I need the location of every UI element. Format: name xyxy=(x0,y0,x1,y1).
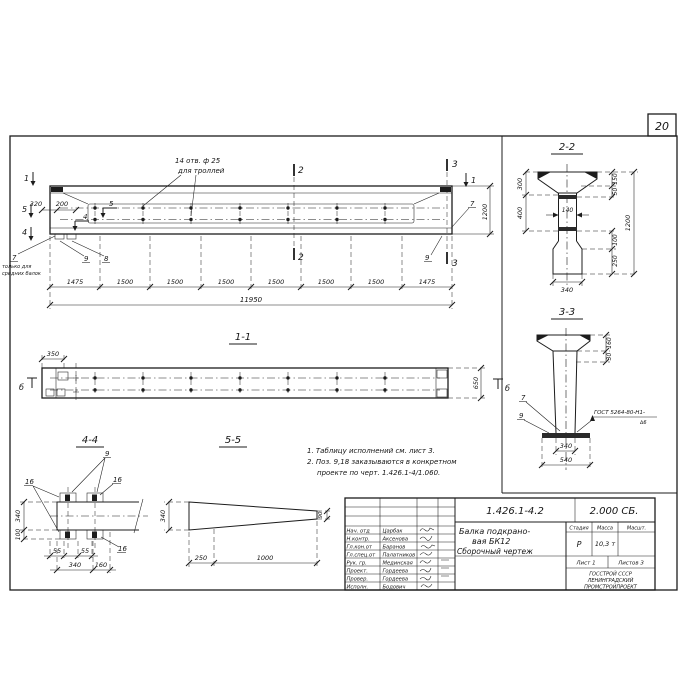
doc-number: 1.426.1-4.2 xyxy=(486,506,544,517)
view-5-5: 5-5 340 90 250 1000 xyxy=(159,435,331,567)
elevation-view: 2 2 3 3 1 5 4 5 4 xyxy=(2,157,494,309)
dim-100-left: 100 xyxy=(15,529,22,541)
org-line2: ЛЕНИНГРАДСКИЙ xyxy=(587,577,634,584)
beam-end-tab-left xyxy=(51,187,63,192)
pos-7-note-line1: только для xyxy=(2,264,31,270)
drawing-canvas: 20 2 2 xyxy=(0,0,700,700)
signature-rows: Нач. отд Царбак Н.контр. Аксенова Гл.кон… xyxy=(347,528,416,590)
end-detail-d xyxy=(437,370,447,378)
bolt-axes xyxy=(68,487,95,549)
col-stage: Стадия xyxy=(569,526,588,532)
top-flange xyxy=(538,172,597,193)
view-arrow-right: 1 xyxy=(464,173,477,187)
end-plate-b xyxy=(67,234,76,239)
weld-band-bottom xyxy=(558,227,577,231)
note-line-3: проекте по черт. 1.426.1-4/1.060. xyxy=(317,469,440,477)
dims-bottom: 55 55 340 160 xyxy=(44,532,116,573)
dim-50: 50 xyxy=(612,188,619,196)
plan-outline xyxy=(42,368,448,398)
pos-8-left: 8 xyxy=(104,255,109,263)
dim-400: 400 xyxy=(516,207,524,219)
pos-16-top-left: 16 xyxy=(25,478,34,486)
chain-dim-7: 1500 xyxy=(368,278,385,286)
weld-note-sub: ∆6 xyxy=(639,420,647,426)
chain-dim-6: 1500 xyxy=(318,278,335,286)
weld-band-top xyxy=(558,195,577,199)
pos-9-left: 9 xyxy=(84,255,89,263)
signature-marks xyxy=(420,528,449,587)
section-mark-4-inner: 4 xyxy=(83,213,87,221)
row-role: Нач. отд xyxy=(347,528,371,534)
chain-dim-5: 1500 xyxy=(268,278,285,286)
row-role: Н.контр. xyxy=(347,536,370,542)
row-name: Гордеева xyxy=(383,568,409,574)
row-role: Рук. гр. xyxy=(347,560,367,566)
chain-dim-2: 1500 xyxy=(117,278,134,286)
view-mark-4-left: 4 xyxy=(22,228,27,237)
beam-web-panel xyxy=(88,204,414,223)
chain-dim-4: 1500 xyxy=(218,278,235,286)
sheets-label: Листов 3 xyxy=(617,561,644,567)
end-detail-a xyxy=(58,372,68,380)
dim-bottom-width: 340 xyxy=(550,274,585,294)
pos-9: 9 xyxy=(519,412,524,420)
stamp-title-line3: Сборочный чертеж xyxy=(457,547,533,556)
row-role: Гл.кон.от xyxy=(347,544,373,550)
dimension-chain: 1475 1500 1500 1500 1500 1500 1500 1475 … xyxy=(47,236,455,309)
leaders-left: 7 только для средних балок 9 8 xyxy=(2,236,110,277)
section-mark-3-bottom: 3 xyxy=(452,259,458,269)
row-role: Гл.спец.от xyxy=(347,552,377,558)
weld-note: ГОСТ 5264-80-Н1- xyxy=(594,410,645,416)
view-mark-1-left: 1 xyxy=(24,174,29,183)
dim-55-b: 55 xyxy=(81,547,89,555)
view-mark-b-right: б xyxy=(505,384,510,393)
end-plate-a xyxy=(55,234,64,239)
section-mark-3-top: 3 xyxy=(452,160,458,170)
view-1-1: 1-1 350 650 б xyxy=(19,332,510,403)
dims-right: 150 50 100 250 1200 xyxy=(577,169,638,277)
pos-7: 7 xyxy=(521,394,526,402)
row-role: Исполн. xyxy=(347,584,369,590)
section-3-3: 3-3 160 30 7 9 ГОСТ 5264-80-Н1- xyxy=(517,307,657,470)
stamp-title-line1: Балка подкрано- xyxy=(459,527,530,536)
org-line3: ПРОМСТРОЙПРОЕКТ xyxy=(584,584,638,591)
note-line-1: 1. Таблицу исполнений см. лист 3. xyxy=(307,447,435,455)
plate-leaders: 7 9 xyxy=(517,394,560,433)
row-name: Баранов xyxy=(383,544,406,550)
dim-340-bottom: 340 xyxy=(69,561,81,569)
chain-dim-8: 1475 xyxy=(419,278,436,286)
drawing-sheet: 20 2 2 xyxy=(0,0,700,700)
row-name: Аксенова xyxy=(382,536,409,542)
dim-160: 160 xyxy=(606,337,613,349)
flange-chamfer-left xyxy=(537,335,549,341)
bottom-plate xyxy=(542,433,590,438)
row-name: Мединская xyxy=(383,560,413,566)
section-2-2-title: 2-2 xyxy=(559,142,575,153)
row-name: Царбак xyxy=(383,528,404,534)
weld-callout: ГОСТ 5264-80-Н1- ∆6 xyxy=(577,410,657,432)
pos-7-note-line2: средних балок xyxy=(2,271,41,277)
dim-320: 320 xyxy=(30,200,42,208)
dim-540: 540 xyxy=(560,456,572,464)
dim-340-left: 340 xyxy=(14,510,22,522)
dim-150: 150 xyxy=(612,173,619,185)
mass-value: 10,3 т xyxy=(595,540,616,548)
dim-160-bottom: 160 xyxy=(95,561,107,569)
section-2-2: 2-2 300 400 150 50 100 250 xyxy=(516,142,638,294)
row-role: Провер. xyxy=(347,576,369,582)
org-line1: ГОССТРОЙ СССР xyxy=(589,571,632,578)
dim-340-label: 340 xyxy=(159,510,167,522)
dims-bottom: 250 1000 xyxy=(186,521,320,567)
dim-340-22: 340 xyxy=(561,286,573,294)
holes-note-line2: для троллей xyxy=(177,167,225,175)
dim-200: 200 xyxy=(56,200,68,208)
doc-code: 2.000 СБ. xyxy=(590,506,639,517)
view-1-1-title: 1-1 xyxy=(235,332,251,343)
sheet-label: Лист 1 xyxy=(575,561,595,567)
pos-9: 9 xyxy=(105,450,110,458)
col-scale: Масшт. xyxy=(627,526,646,532)
beam-haunch-right xyxy=(414,193,439,204)
dim-140: 140 xyxy=(562,207,574,214)
web-right xyxy=(575,351,577,433)
section-mark-2-top: 2 xyxy=(298,166,304,176)
top-flange xyxy=(537,335,590,351)
note-line-2: 2. Поз. 9,18 заказываются в конкретном xyxy=(307,458,457,466)
title-block: 1.426.1-4.2 2.000 СБ. Балка подкрано- ва… xyxy=(345,498,655,591)
pos-16-bottom: 16 xyxy=(118,545,127,553)
pos-16-top-right: 16 xyxy=(113,476,122,484)
section-mark-5-inner: 5 xyxy=(109,200,114,208)
dim-total-length: 11950 xyxy=(240,296,263,304)
dim-beam-height: 1200 xyxy=(452,183,494,237)
dim-1200-section: 1200 xyxy=(624,215,632,232)
dims-left: 340 100 xyxy=(14,499,60,542)
dim-90-label: 90 xyxy=(318,511,324,518)
pos-7-left: 7 xyxy=(12,254,17,262)
dims-right: 160 30 xyxy=(576,332,613,365)
row-role: Проект. xyxy=(347,568,368,574)
view-mark-5-left: 5 xyxy=(22,205,27,214)
stamp-title-line2: вая БК12 xyxy=(472,537,510,546)
section-cut-2: 2 2 xyxy=(294,164,304,263)
dim-55-a: 55 xyxy=(53,547,61,555)
dim-90: 90 xyxy=(317,508,331,522)
section-3-3-title: 3-3 xyxy=(559,307,575,318)
dim-300: 300 xyxy=(516,178,524,190)
view-4-4-title: 4-4 xyxy=(82,435,98,446)
dim-web-width: 140 xyxy=(546,207,589,218)
bottom-block xyxy=(553,241,582,274)
dims-left: 300 400 xyxy=(516,169,558,234)
dim-100: 100 xyxy=(612,234,619,246)
leaders-right: 7 9 xyxy=(424,200,476,262)
dim-250: 250 xyxy=(195,554,207,562)
sheet-number: 20 xyxy=(655,120,669,133)
stage-value: Р xyxy=(577,540,582,549)
dim-650: 650 xyxy=(448,365,486,401)
pos-9-right: 9 xyxy=(425,254,430,262)
dim-1000: 1000 xyxy=(257,554,274,562)
dim-650-label: 650 xyxy=(472,377,480,389)
holes-note-line1: 14 отв. ф 25 xyxy=(175,157,221,165)
dim-30: 30 xyxy=(606,353,613,361)
view-mark-b-left: б xyxy=(19,383,24,392)
notes: 1. Таблицу исполнений см. лист 3. 2. Поз… xyxy=(307,447,457,477)
chain-dim-3: 1500 xyxy=(167,278,184,286)
flange-chamfer-left xyxy=(538,172,551,179)
dim-340: 340 xyxy=(159,499,189,533)
dim-350-label: 350 xyxy=(47,350,59,358)
row-name: Гордеева xyxy=(383,576,409,582)
view-marks-b: б б xyxy=(19,378,510,393)
hole-center-ticks xyxy=(95,372,385,396)
web-left xyxy=(553,351,556,433)
row-name: Бодович xyxy=(383,584,406,590)
dim-250: 250 xyxy=(612,255,619,267)
chain-dim-1: 1475 xyxy=(67,278,84,286)
dims-left-end: 320 200 xyxy=(30,200,79,213)
col-mass: Масса xyxy=(597,526,613,532)
flange-chamfer-right xyxy=(584,172,597,179)
rib-wedge xyxy=(189,502,317,530)
view-mark-1-right: 1 xyxy=(471,176,476,185)
pos-7-right: 7 xyxy=(470,200,475,208)
beam-end-tab-right xyxy=(440,187,451,192)
flange-chamfer-right xyxy=(579,335,590,341)
view-5-5-title: 5-5 xyxy=(225,435,241,446)
row-name: Палатников xyxy=(383,552,416,558)
dim-350: 350 xyxy=(39,350,67,368)
dim-340-33: 340 xyxy=(560,442,572,450)
dim-1200-elevation: 1200 xyxy=(481,204,489,221)
view-4-4: 4-4 9 16 16 16 xyxy=(14,435,148,573)
